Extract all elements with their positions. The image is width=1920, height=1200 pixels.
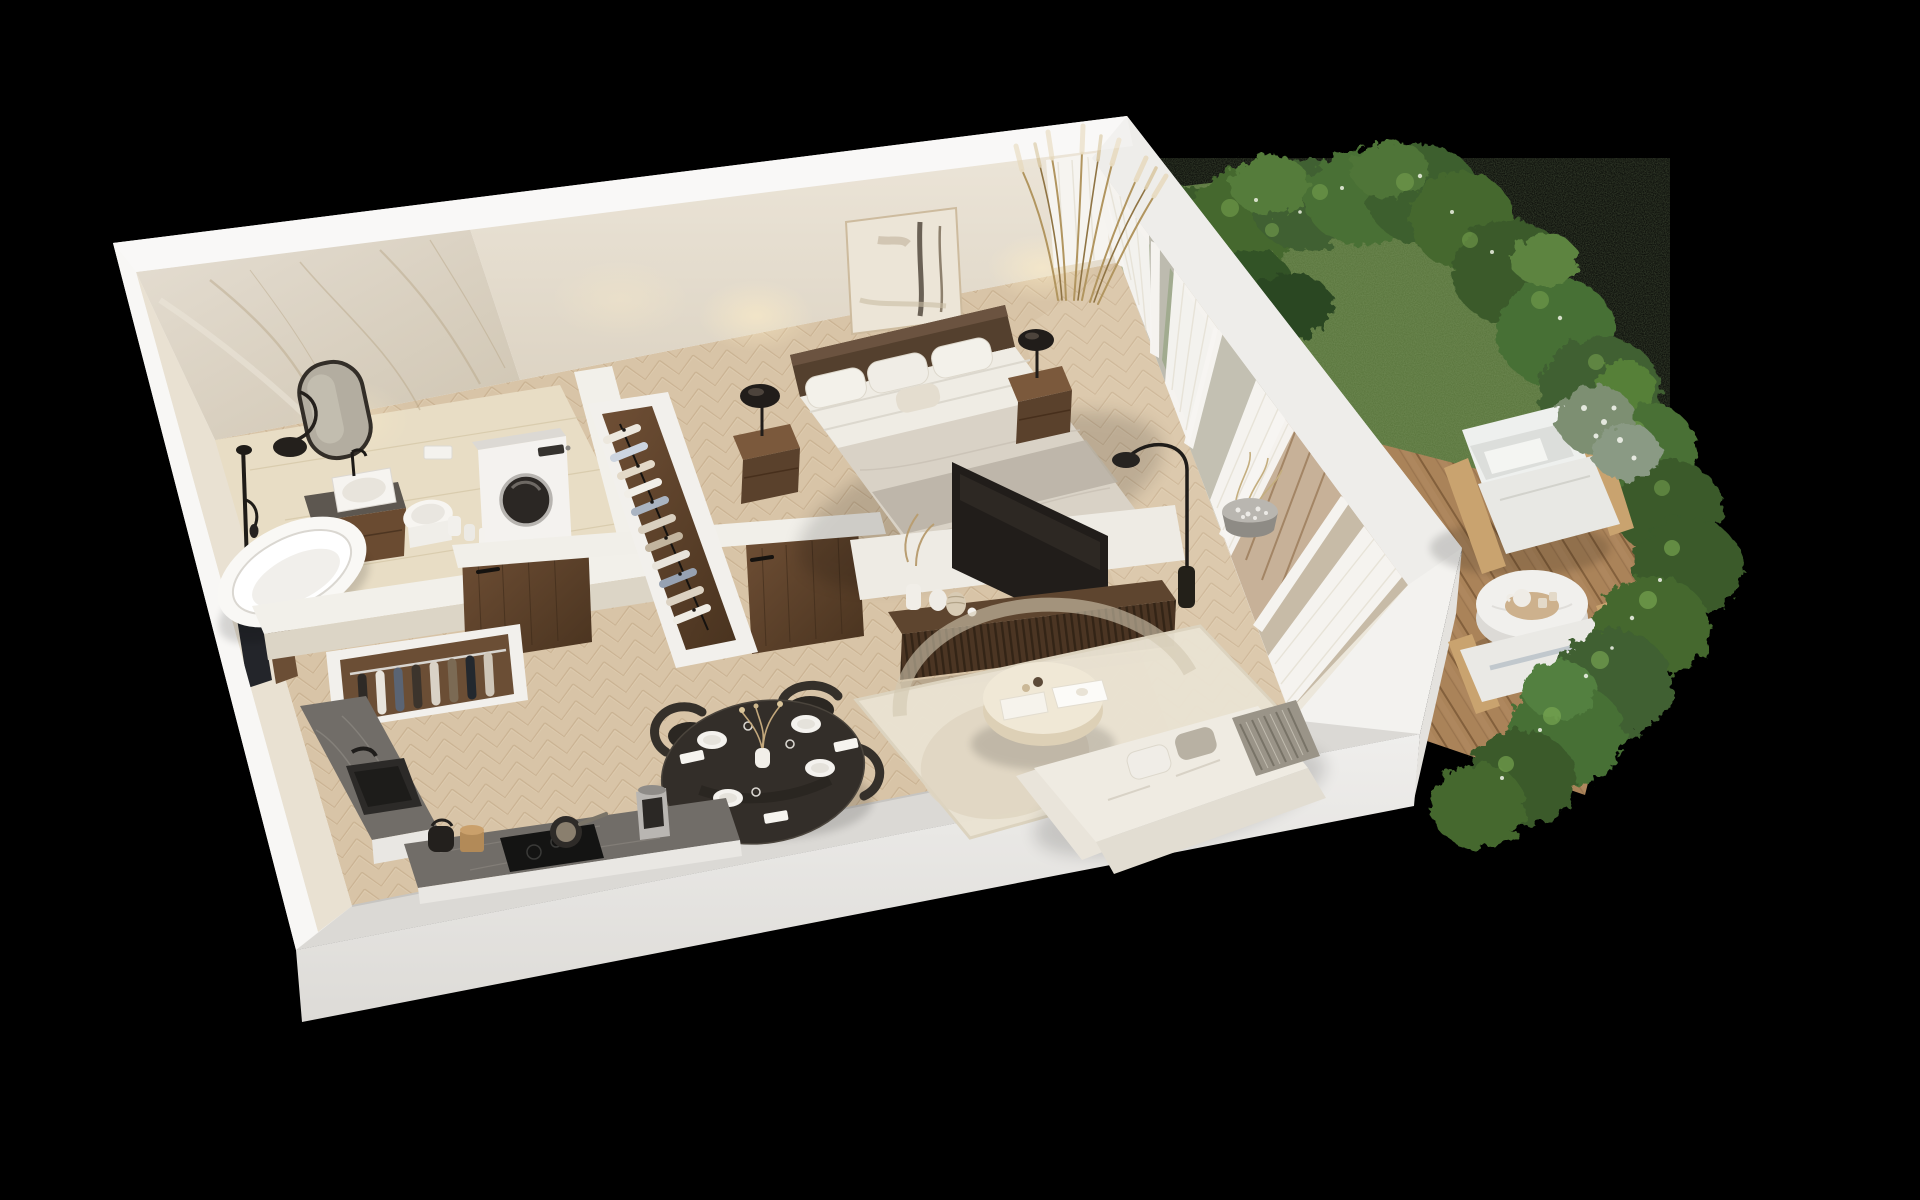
artwork (846, 208, 962, 334)
wooden-canister (460, 825, 484, 852)
coffee-machine (636, 785, 670, 840)
floorplan-render (0, 0, 1920, 1200)
